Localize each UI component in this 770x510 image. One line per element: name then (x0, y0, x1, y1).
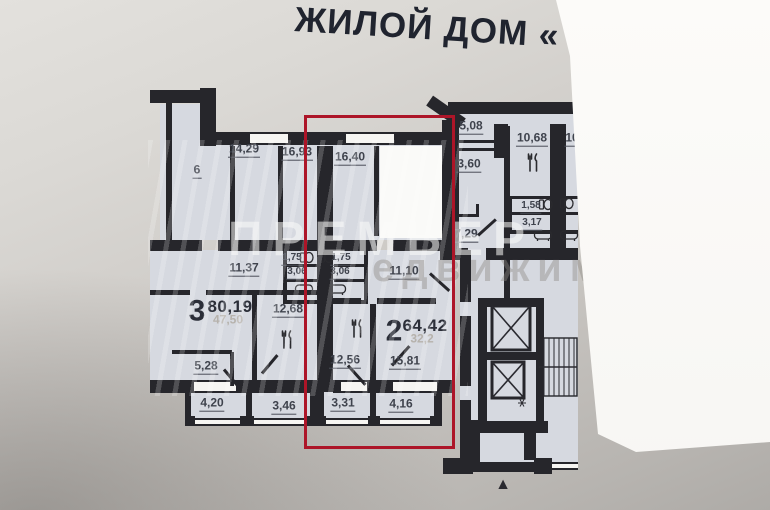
floor-plan-photo: ЖИЛОЙ ДОМ « 614,2916,9316,405,0810,68103… (0, 0, 770, 510)
north-arrow-icon: ▲ (495, 476, 511, 494)
highlighted-apartment-outline (304, 115, 455, 449)
